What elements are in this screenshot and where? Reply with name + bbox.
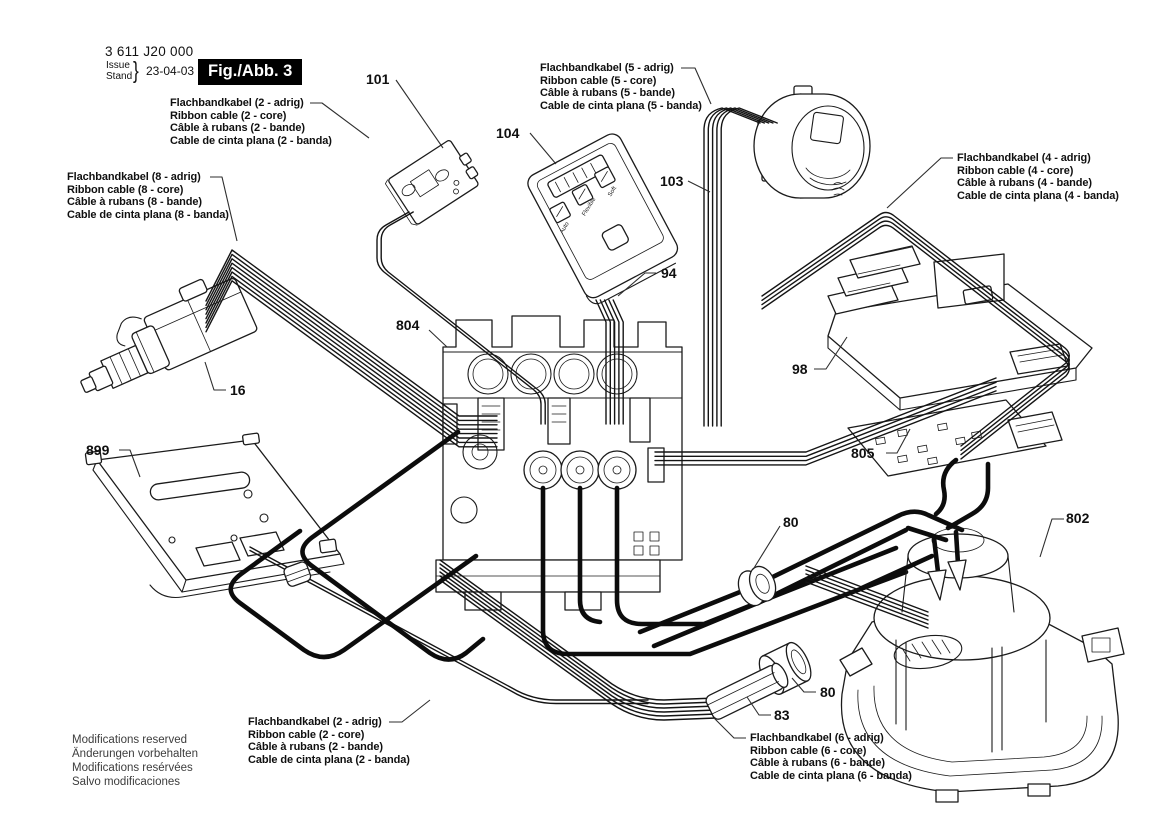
modifications-es: Salvo modificaciones: [72, 775, 198, 789]
label-line-en: Ribbon cable (6 - core): [750, 745, 912, 758]
label-line-de: Flachbandkabel (8 - adrig): [67, 171, 229, 184]
label-line-de: Flachbandkabel (2 - adrig): [170, 97, 332, 110]
label-line-en: Ribbon cable (4 - core): [957, 165, 1119, 178]
label-line-en: Ribbon cable (5 - core): [540, 75, 702, 88]
label-ribbon-4core-right: Flachbandkabel (4 - adrig) Ribbon cable …: [957, 152, 1119, 202]
label-ribbon-2core-bottom: Flachbandkabel (2 - adrig) Ribbon cable …: [248, 716, 410, 766]
label-ribbon-5core-top: Flachbandkabel (5 - adrig) Ribbon cable …: [540, 62, 702, 112]
label-line-es: Cable de cinta plana (6 - banda): [750, 770, 912, 783]
grommet-80-upper: [734, 563, 781, 610]
callout-104: 104: [496, 125, 519, 141]
label-ribbon-2core-top: Flachbandkabel (2 - adrig) Ribbon cable …: [170, 97, 332, 147]
callout-103: 103: [660, 173, 683, 189]
exploded-wiring-diagram: Auto Flexible Soft: [0, 0, 1169, 826]
label-line-en: Ribbon cable (8 - core): [67, 184, 229, 197]
label-line-de: Flachbandkabel (2 - adrig): [248, 716, 410, 729]
label-line-es: Cable de cinta plana (5 - banda): [540, 100, 702, 113]
label-line-de: Flachbandkabel (6 - adrig): [750, 732, 912, 745]
part-805-pcb: [848, 400, 1062, 476]
figure-label: Fig./Abb. 3: [198, 59, 302, 85]
label-line-es: Cable de cinta plana (4 - banda): [957, 190, 1119, 203]
part-101-pcb: [384, 136, 485, 228]
stand-label: Stand: [106, 71, 132, 82]
callout-80-upper: 80: [783, 514, 799, 530]
callout-805: 805: [851, 445, 874, 461]
label-line-fr: Câble à rubans (6 - bande): [750, 757, 912, 770]
callout-16: 16: [230, 382, 246, 398]
label-line-fr: Câble à rubans (4 - bande): [957, 177, 1119, 190]
callout-94: 94: [661, 265, 677, 281]
label-line-en: Ribbon cable (2 - core): [248, 729, 410, 742]
callout-98: 98: [792, 361, 808, 377]
modifications-de: Änderungen vorbehalten: [72, 747, 198, 761]
callout-804: 804: [396, 317, 419, 333]
label-line-es: Cable de cinta plana (2 - banda): [248, 754, 410, 767]
type-number: 3 611 J20 000: [105, 44, 193, 59]
callout-899: 899: [86, 442, 109, 458]
label-line-es: Cable de cinta plana (2 - banda): [170, 135, 332, 148]
label-line-fr: Câble à rubans (2 - bande): [248, 741, 410, 754]
label-line-de: Flachbandkabel (5 - adrig): [540, 62, 702, 75]
label-line-es: Cable de cinta plana (8 - banda): [67, 209, 229, 222]
issue-label: Issue: [106, 60, 132, 71]
issue-stand-label: Issue Stand: [106, 60, 132, 82]
modifications-fr: Modifications resérvées: [72, 761, 198, 775]
part-rotary-drum: [754, 86, 870, 198]
label-line-de: Flachbandkabel (4 - adrig): [957, 152, 1119, 165]
callout-802: 802: [1066, 510, 1089, 526]
callout-80-lower: 80: [820, 684, 836, 700]
label-ribbon-8core-left: Flachbandkabel (8 - adrig) Ribbon cable …: [67, 171, 229, 221]
label-line-fr: Câble à rubans (5 - bande): [540, 87, 702, 100]
label-ribbon-6core-bottom: Flachbandkabel (6 - adrig) Ribbon cable …: [750, 732, 912, 782]
modifications-notice: Modifications reserved Änderungen vorbeh…: [72, 733, 198, 789]
modifications-en: Modifications reserved: [72, 733, 198, 747]
label-line-fr: Câble à rubans (8 - bande): [67, 196, 229, 209]
part-804-housing: [436, 316, 682, 610]
label-line-fr: Câble à rubans (2 - bande): [170, 122, 332, 135]
callout-101: 101: [366, 71, 389, 87]
callout-83: 83: [774, 707, 790, 723]
label-line-en: Ribbon cable (2 - core): [170, 110, 332, 123]
brace-glyph: }: [133, 57, 139, 84]
issue-date: 23-04-03: [146, 64, 194, 78]
